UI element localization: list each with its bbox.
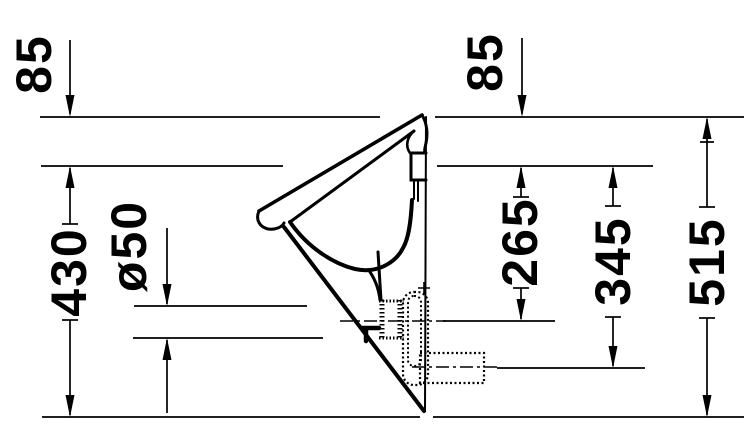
dimension-85-right xyxy=(518,38,527,117)
label-offset-left: 85 xyxy=(6,34,62,94)
rim-back-profile xyxy=(422,115,427,153)
dimension-diameter-50 xyxy=(163,228,172,413)
rim-outer-edge xyxy=(259,115,422,211)
label-offset-right: 85 xyxy=(457,32,513,92)
urinal-body xyxy=(258,115,427,411)
urinal-dimension-drawing: 85 85 430 ø50 265 345 515 xyxy=(0,0,747,426)
wall-mounting-line xyxy=(425,117,426,411)
label-trap-outlet-height: 345 xyxy=(585,216,641,305)
outer-front-wall xyxy=(284,227,424,411)
rim-lip xyxy=(258,211,284,229)
spreader-pipe xyxy=(414,180,418,201)
optional-trap-dashed xyxy=(403,282,484,385)
technical-drawing-canvas: 85 85 430 ø50 265 345 515 xyxy=(0,0,747,426)
horizontal-outlet-pipe-outline xyxy=(420,353,484,383)
rim-inner-edge xyxy=(290,131,414,222)
label-overall-height: 515 xyxy=(679,217,735,306)
label-outlet-center-height: 265 xyxy=(492,197,548,286)
label-outlet-diameter: ø50 xyxy=(101,200,157,292)
inlet-connector xyxy=(411,153,426,180)
threaded-outlet-spigot xyxy=(379,300,404,339)
label-front-height: 430 xyxy=(41,227,97,316)
dimension-85-left xyxy=(66,40,75,117)
